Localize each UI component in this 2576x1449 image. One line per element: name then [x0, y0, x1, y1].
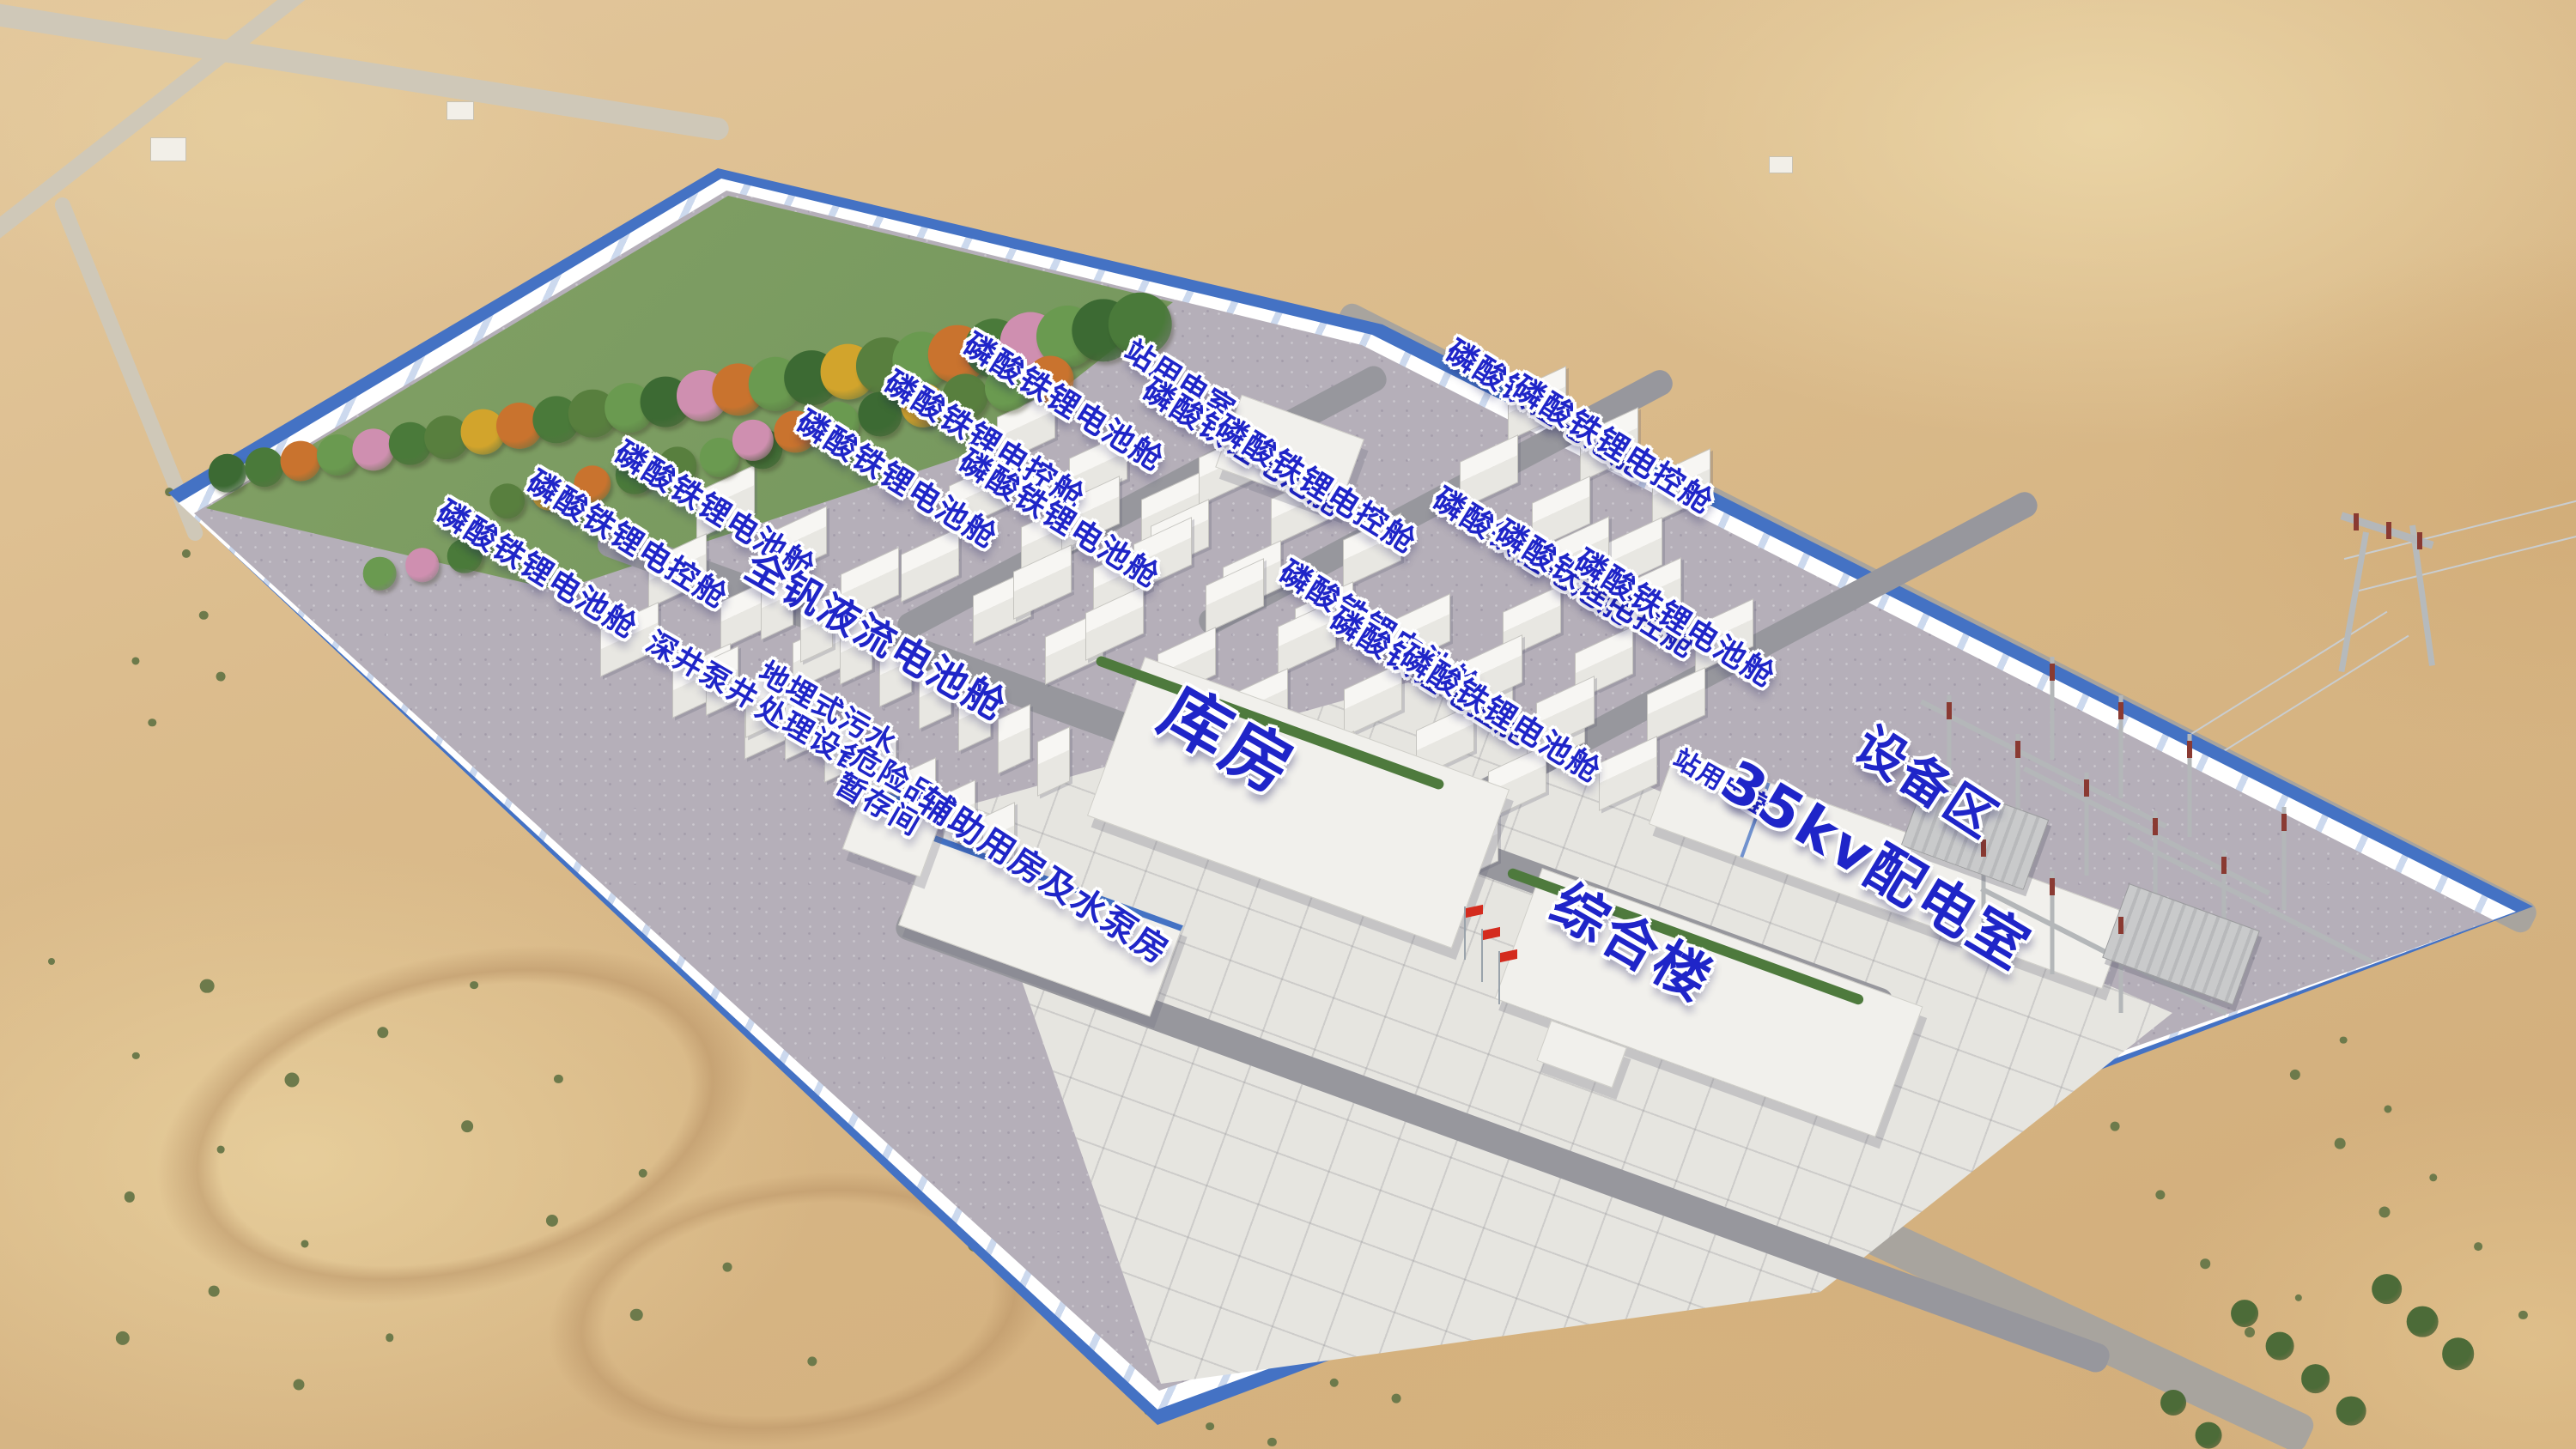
desert-shrub [2336, 1396, 2366, 1426]
desert-shrub [200, 979, 215, 993]
substation-insulator [2221, 857, 2227, 874]
desert-shrub [199, 610, 209, 620]
desert-shrub [48, 958, 55, 965]
desert-shrub [2196, 1422, 2222, 1449]
desert-shrub [132, 1052, 139, 1058]
desert-shrub [182, 549, 191, 558]
desert-shrub [2442, 1338, 2475, 1371]
desert-shrub [470, 981, 478, 990]
desert-shrub [2407, 1306, 2439, 1337]
desert-shrub [2474, 1242, 2482, 1251]
distant-building [150, 137, 186, 161]
substation-insulator [2187, 741, 2192, 758]
desert-shrub [293, 1379, 304, 1391]
desert-shrub [2429, 1173, 2437, 1181]
desert-shrub [301, 1240, 309, 1247]
desert-shrub [1391, 1394, 1400, 1404]
tower-insulator [2386, 522, 2391, 539]
desert-shrub [2111, 1121, 2120, 1131]
desert-shrub [125, 1191, 135, 1202]
desert-shrub [2518, 1311, 2527, 1319]
park-tree [281, 441, 321, 482]
distant-building [447, 101, 474, 120]
desert-shrub [116, 1331, 130, 1345]
desert-shrub [639, 1168, 648, 1178]
substation-insulator [2084, 779, 2089, 797]
desert-shrub [149, 718, 156, 726]
park-tree [405, 548, 440, 582]
desert-shrub [807, 1356, 817, 1366]
desert-shrub [216, 1146, 224, 1154]
desert-shrub [2340, 1036, 2348, 1044]
desert-shrub [546, 1215, 558, 1227]
substation-insulator [1947, 702, 1952, 719]
desert-shrub [2245, 1327, 2255, 1337]
highway [0, 0, 731, 142]
desert-shrub [2160, 1390, 2186, 1416]
tower-insulator [2417, 532, 2422, 549]
desert-shrub [461, 1121, 473, 1133]
desert-shrub [2200, 1258, 2210, 1269]
desert-shrub [1329, 1379, 1339, 1388]
desert-shrub [131, 658, 139, 665]
desert-shrub [2289, 1070, 2300, 1080]
transmission-tower-leg [2338, 531, 2369, 672]
substation-insulator [2118, 702, 2123, 719]
substation-insulator [2118, 917, 2123, 934]
substation-insulator [2050, 664, 2055, 681]
desert-shrub [1267, 1438, 1276, 1446]
substation-insulator [2281, 814, 2287, 831]
desert-shrub [377, 1027, 388, 1038]
desert-shrub [2266, 1331, 2294, 1360]
desert-shrub [284, 1073, 299, 1088]
desert-shrub [554, 1075, 562, 1083]
desert-shrub [2385, 1105, 2392, 1113]
park-tree [363, 557, 397, 591]
desert-shrub [2295, 1294, 2302, 1300]
substation-insulator [2153, 818, 2158, 835]
tower-insulator [2354, 513, 2359, 530]
desert-shrub [2372, 1274, 2403, 1305]
desert-shrub [723, 1263, 732, 1272]
desert-shrub [2301, 1364, 2330, 1393]
desert-shrub [209, 1286, 220, 1297]
aerial-render-energy-storage-site: 站用电室磷酸铁锂电池舱磷酸铁锂电控舱磷酸铁锂电池舱磷酸铁锂电池舱磷酸铁锂电控舱磷… [0, 0, 2576, 1449]
desert-shrub [2379, 1207, 2391, 1218]
substation-insulator [2015, 741, 2020, 758]
desert-dune [2104, 215, 2576, 773]
desert-shrub [2335, 1138, 2346, 1149]
park-tree [245, 448, 284, 488]
desert-shrub [2155, 1190, 2165, 1199]
desert-shrub [216, 672, 225, 682]
desert-shrub [630, 1308, 642, 1320]
substation-insulator [2050, 878, 2055, 895]
distant-building [1769, 156, 1793, 173]
park-tree [317, 434, 358, 476]
desert-shrub [386, 1333, 393, 1341]
desert-shrub [1206, 1422, 1214, 1431]
desert-shrub [2231, 1300, 2258, 1327]
